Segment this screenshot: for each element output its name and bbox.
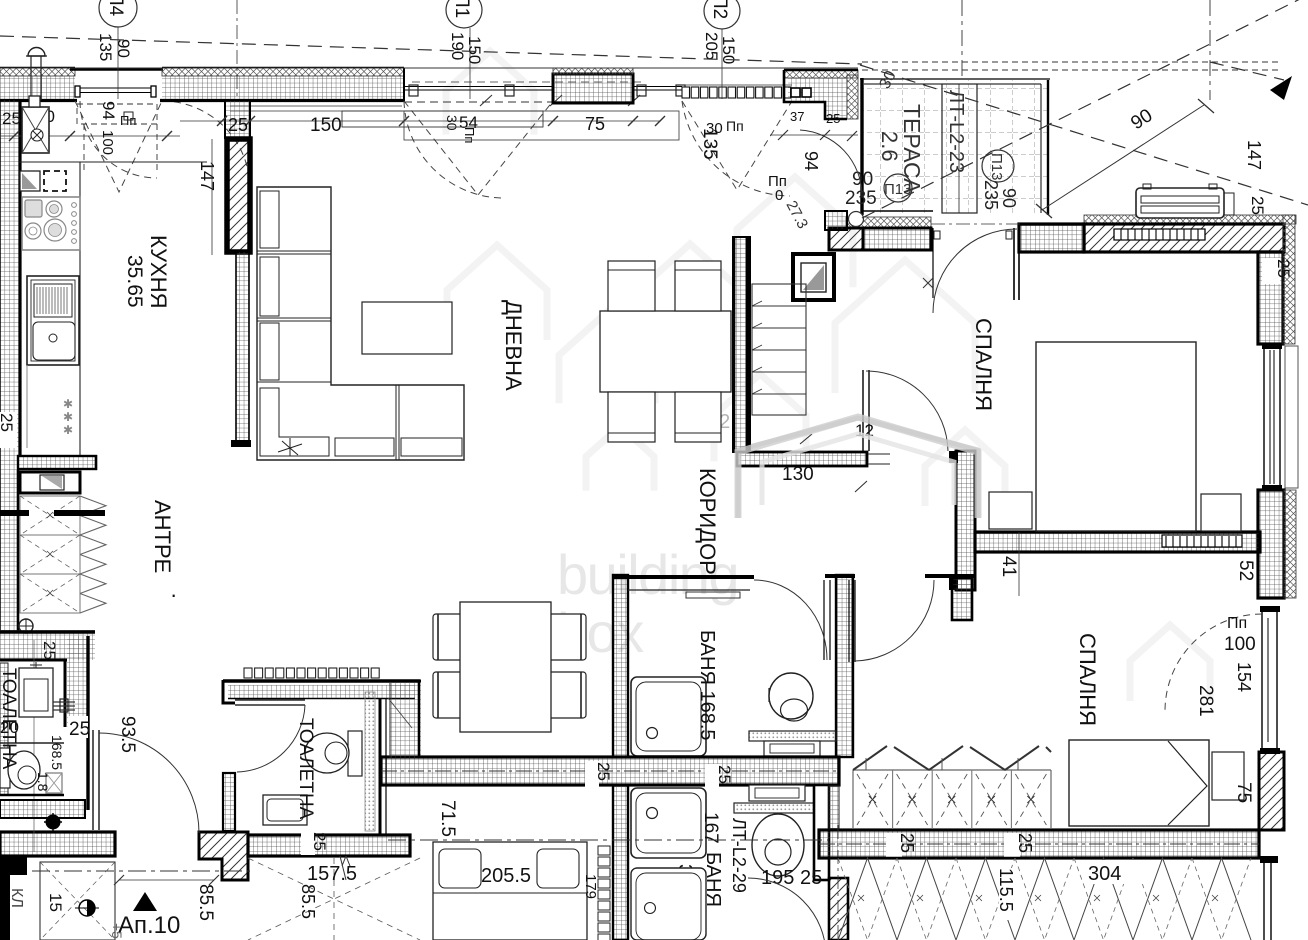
svg-text:·: · [170,582,177,607]
svg-text:235: 235 [981,180,1001,210]
svg-text:25: 25 [800,867,822,889]
svg-text:100: 100 [99,130,116,155]
svg-text:75: 75 [1233,782,1254,803]
svg-text:205: 205 [702,32,721,60]
svg-text:235: 235 [845,188,877,209]
svg-text:КУХНЯ: КУХНЯ [146,235,171,309]
svg-text:2.6: 2.6 [877,131,902,162]
svg-text:КЛ: КЛ [8,888,25,908]
svg-text:П13: П13 [988,153,1005,180]
svg-text:205.5: 205.5 [481,865,531,887]
svg-text:25: 25 [69,719,90,740]
svg-text:✱: ✱ [63,397,73,411]
svg-text:150: 150 [310,115,342,136]
svg-text:41: 41 [998,556,1019,577]
svg-text:25: 25 [2,109,21,128]
svg-text:СПАЛНЯ: СПАЛНЯ [971,318,996,411]
svg-text:СПАЛНЯ: СПАЛНЯ [1075,633,1100,726]
svg-text:90: 90 [852,169,873,190]
svg-text:93.5: 93.5 [117,716,138,753]
svg-text:52: 52 [1235,560,1256,581]
svg-text:90: 90 [1127,105,1156,134]
svg-text:25: 25 [1015,833,1035,853]
svg-text:157.5: 157.5 [307,863,357,885]
svg-text:✱: ✱ [63,410,73,424]
svg-text:179: 179 [582,874,599,899]
svg-text:94: 94 [99,101,118,120]
svg-text:ЛТ-L2-29: ЛТ-L2-29 [729,818,749,893]
svg-text:25: 25 [1248,196,1267,215]
svg-text:25: 25 [826,111,840,126]
svg-text:85.5: 85.5 [195,884,216,921]
svg-text:КОРИДОР: КОРИДОР [695,468,720,575]
svg-text:Пп: Пп [1227,615,1247,632]
svg-text:90: 90 [114,39,133,58]
svg-text:75: 75 [585,114,605,134]
svg-text:25: 25 [228,115,248,135]
svg-text:15: 15 [46,893,65,912]
svg-text:100: 100 [1224,634,1256,655]
svg-text:25: 25 [0,413,16,432]
svg-text:37: 37 [790,109,804,124]
svg-text:25: 25 [310,832,329,851]
svg-text:167: 167 [700,812,721,844]
svg-text:27.3: 27.3 [782,198,811,232]
svg-text:+5.50: +5.50 [109,923,125,940]
svg-text:Ап.10: Ап.10 [118,912,180,939]
svg-text:154: 154 [1234,662,1254,692]
svg-text:130: 130 [782,464,814,485]
svg-text:94: 94 [801,151,821,171]
svg-text:85.5: 85.5 [298,884,318,919]
svg-text:90: 90 [999,188,1019,208]
svg-text:30: 30 [444,115,460,131]
svg-text:ДНЕВНА: ДНЕВНА [501,300,526,391]
svg-text:25: 25 [715,765,734,784]
svg-text:✱: ✱ [63,423,73,437]
svg-text:Пп: Пп [726,118,744,134]
svg-text:БАНЯ 168.5: БАНЯ 168.5 [696,630,718,741]
svg-text:П2: П2 [709,0,730,19]
svg-text:147: 147 [197,161,217,191]
svg-text:71.5: 71.5 [437,800,458,837]
svg-text:35.65: 35.65 [123,255,146,308]
svg-text:П4: П4 [105,0,126,17]
svg-text:0: 0 [775,187,783,204]
svg-text:30: 30 [706,120,723,137]
svg-text:147: 147 [1244,140,1264,170]
svg-text:168.5: 168.5 [49,735,65,770]
svg-text:190: 190 [448,32,467,60]
svg-text:281: 281 [1195,685,1216,717]
svg-text:Пп: Пп [462,127,477,143]
svg-text:П1: П1 [451,0,472,18]
svg-text:АНТРЕ: АНТРЕ [150,500,175,573]
svg-text:25: 25 [594,762,613,781]
svg-text:1.8: 1.8 [35,772,51,792]
svg-text:ЛТ-L2-23: ЛТ-L2-23 [945,90,967,173]
svg-text:25: 25 [1274,259,1293,278]
svg-text:195: 195 [761,867,794,889]
svg-text:304: 304 [1088,863,1121,885]
svg-text:25: 25 [897,833,917,853]
svg-text:135: 135 [96,33,115,61]
svg-text:115.5: 115.5 [996,868,1016,912]
svg-text:20: 20 [0,718,19,737]
svg-text:ТОАЛЕТНА: ТОАЛЕТНА [295,718,316,820]
svg-text:150: 150 [465,36,484,64]
